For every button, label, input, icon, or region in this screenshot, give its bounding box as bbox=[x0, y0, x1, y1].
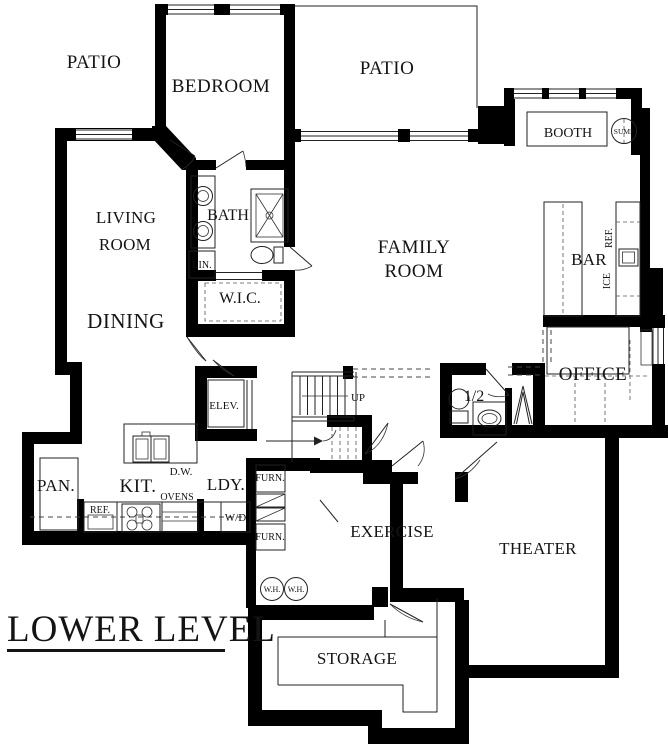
room-label-bath: BATH bbox=[207, 207, 249, 224]
room-label-family-2: ROOM bbox=[384, 261, 443, 282]
room-label-bedroom: BEDROOM bbox=[172, 76, 271, 97]
kitchen-island bbox=[124, 424, 197, 463]
room-label-patio-right: PATIO bbox=[360, 58, 415, 79]
label-ovens: OVENS bbox=[160, 492, 193, 503]
room-label-patio-left: PATIO bbox=[67, 52, 122, 73]
plan-title: LOWER LEVEL bbox=[7, 609, 276, 650]
room-label-bar: BAR bbox=[571, 250, 607, 269]
room-label-wic: W.I.C. bbox=[219, 290, 261, 307]
room-label-laundry: LDY. bbox=[207, 475, 245, 494]
label-up: UP bbox=[351, 392, 365, 404]
label-sump: SUMP bbox=[614, 127, 634, 136]
label-dishwasher: D.W. bbox=[170, 466, 193, 478]
plan-title-group: LOWER LEVEL bbox=[7, 609, 276, 652]
title-underline bbox=[7, 649, 225, 652]
label-water-heater-2: W.H. bbox=[288, 585, 305, 594]
room-label-pantry: PAN. bbox=[37, 476, 75, 495]
bar-sink bbox=[619, 249, 638, 266]
room-label-family-1: FAMILY bbox=[378, 237, 451, 258]
closet-bifold-doors bbox=[514, 386, 532, 424]
room-label-dining: DINING bbox=[87, 309, 165, 333]
label-water-heater-1: W.H. bbox=[264, 585, 281, 594]
room-labels: PATIO BEDROOM PATIO BOOTH SUMP LIVING RO… bbox=[37, 52, 634, 668]
room-label-theater: THEATER bbox=[499, 539, 577, 558]
room-label-storage: STORAGE bbox=[317, 649, 397, 668]
label-furnace-1: FURN. bbox=[255, 473, 284, 484]
label-elevator: ELEV. bbox=[209, 400, 239, 412]
room-label-exercise: EXERCISE bbox=[350, 522, 434, 541]
label-bar-ice: ICE bbox=[602, 273, 613, 289]
room-label-kitchen: KIT. bbox=[120, 476, 157, 497]
label-bar-ref: REF. bbox=[604, 228, 615, 248]
label-linen: LIN. bbox=[192, 260, 211, 271]
label-washer-dryer: W/D bbox=[225, 512, 246, 524]
label-kitchen-ref: REF. bbox=[90, 505, 110, 516]
room-label-booth: BOOTH bbox=[544, 126, 592, 141]
patio-outline bbox=[295, 6, 477, 108]
room-label-living-1: LIVING bbox=[96, 208, 156, 227]
floor-plan: PATIO BEDROOM PATIO BOOTH SUMP LIVING RO… bbox=[0, 0, 668, 750]
floor-plan-drawing: PATIO BEDROOM PATIO BOOTH SUMP LIVING RO… bbox=[0, 0, 668, 750]
room-label-living-2: ROOM bbox=[99, 235, 151, 254]
room-label-office: OFFICE bbox=[559, 364, 627, 385]
stairs bbox=[266, 372, 356, 462]
label-furnace-2: FURN. bbox=[255, 532, 284, 543]
room-label-half-bath: 1/2 bbox=[464, 388, 484, 405]
toilet bbox=[251, 247, 273, 264]
bar-wall-counter bbox=[616, 202, 640, 316]
